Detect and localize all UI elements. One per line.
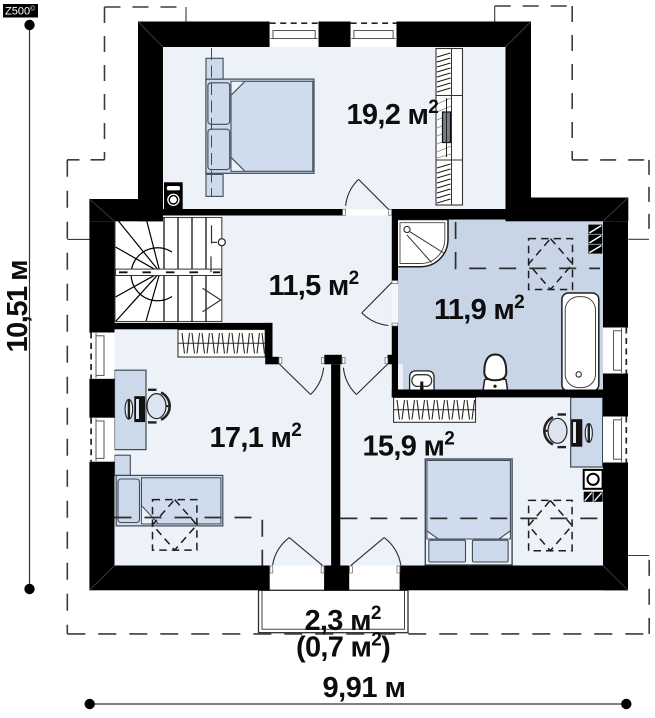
svg-text:15,9 м2: 15,9 м2 <box>363 429 455 463</box>
svg-text:9,91 м: 9,91 м <box>323 672 406 704</box>
svg-text:17,1 м2: 17,1 м2 <box>210 420 302 454</box>
svg-text:11,9 м2: 11,9 м2 <box>434 292 524 326</box>
svg-text:10,51 м: 10,51 м <box>2 261 34 353</box>
svg-text:19,2 м2: 19,2 м2 <box>347 97 439 131</box>
svg-text:11,5 м2: 11,5 м2 <box>269 268 359 302</box>
